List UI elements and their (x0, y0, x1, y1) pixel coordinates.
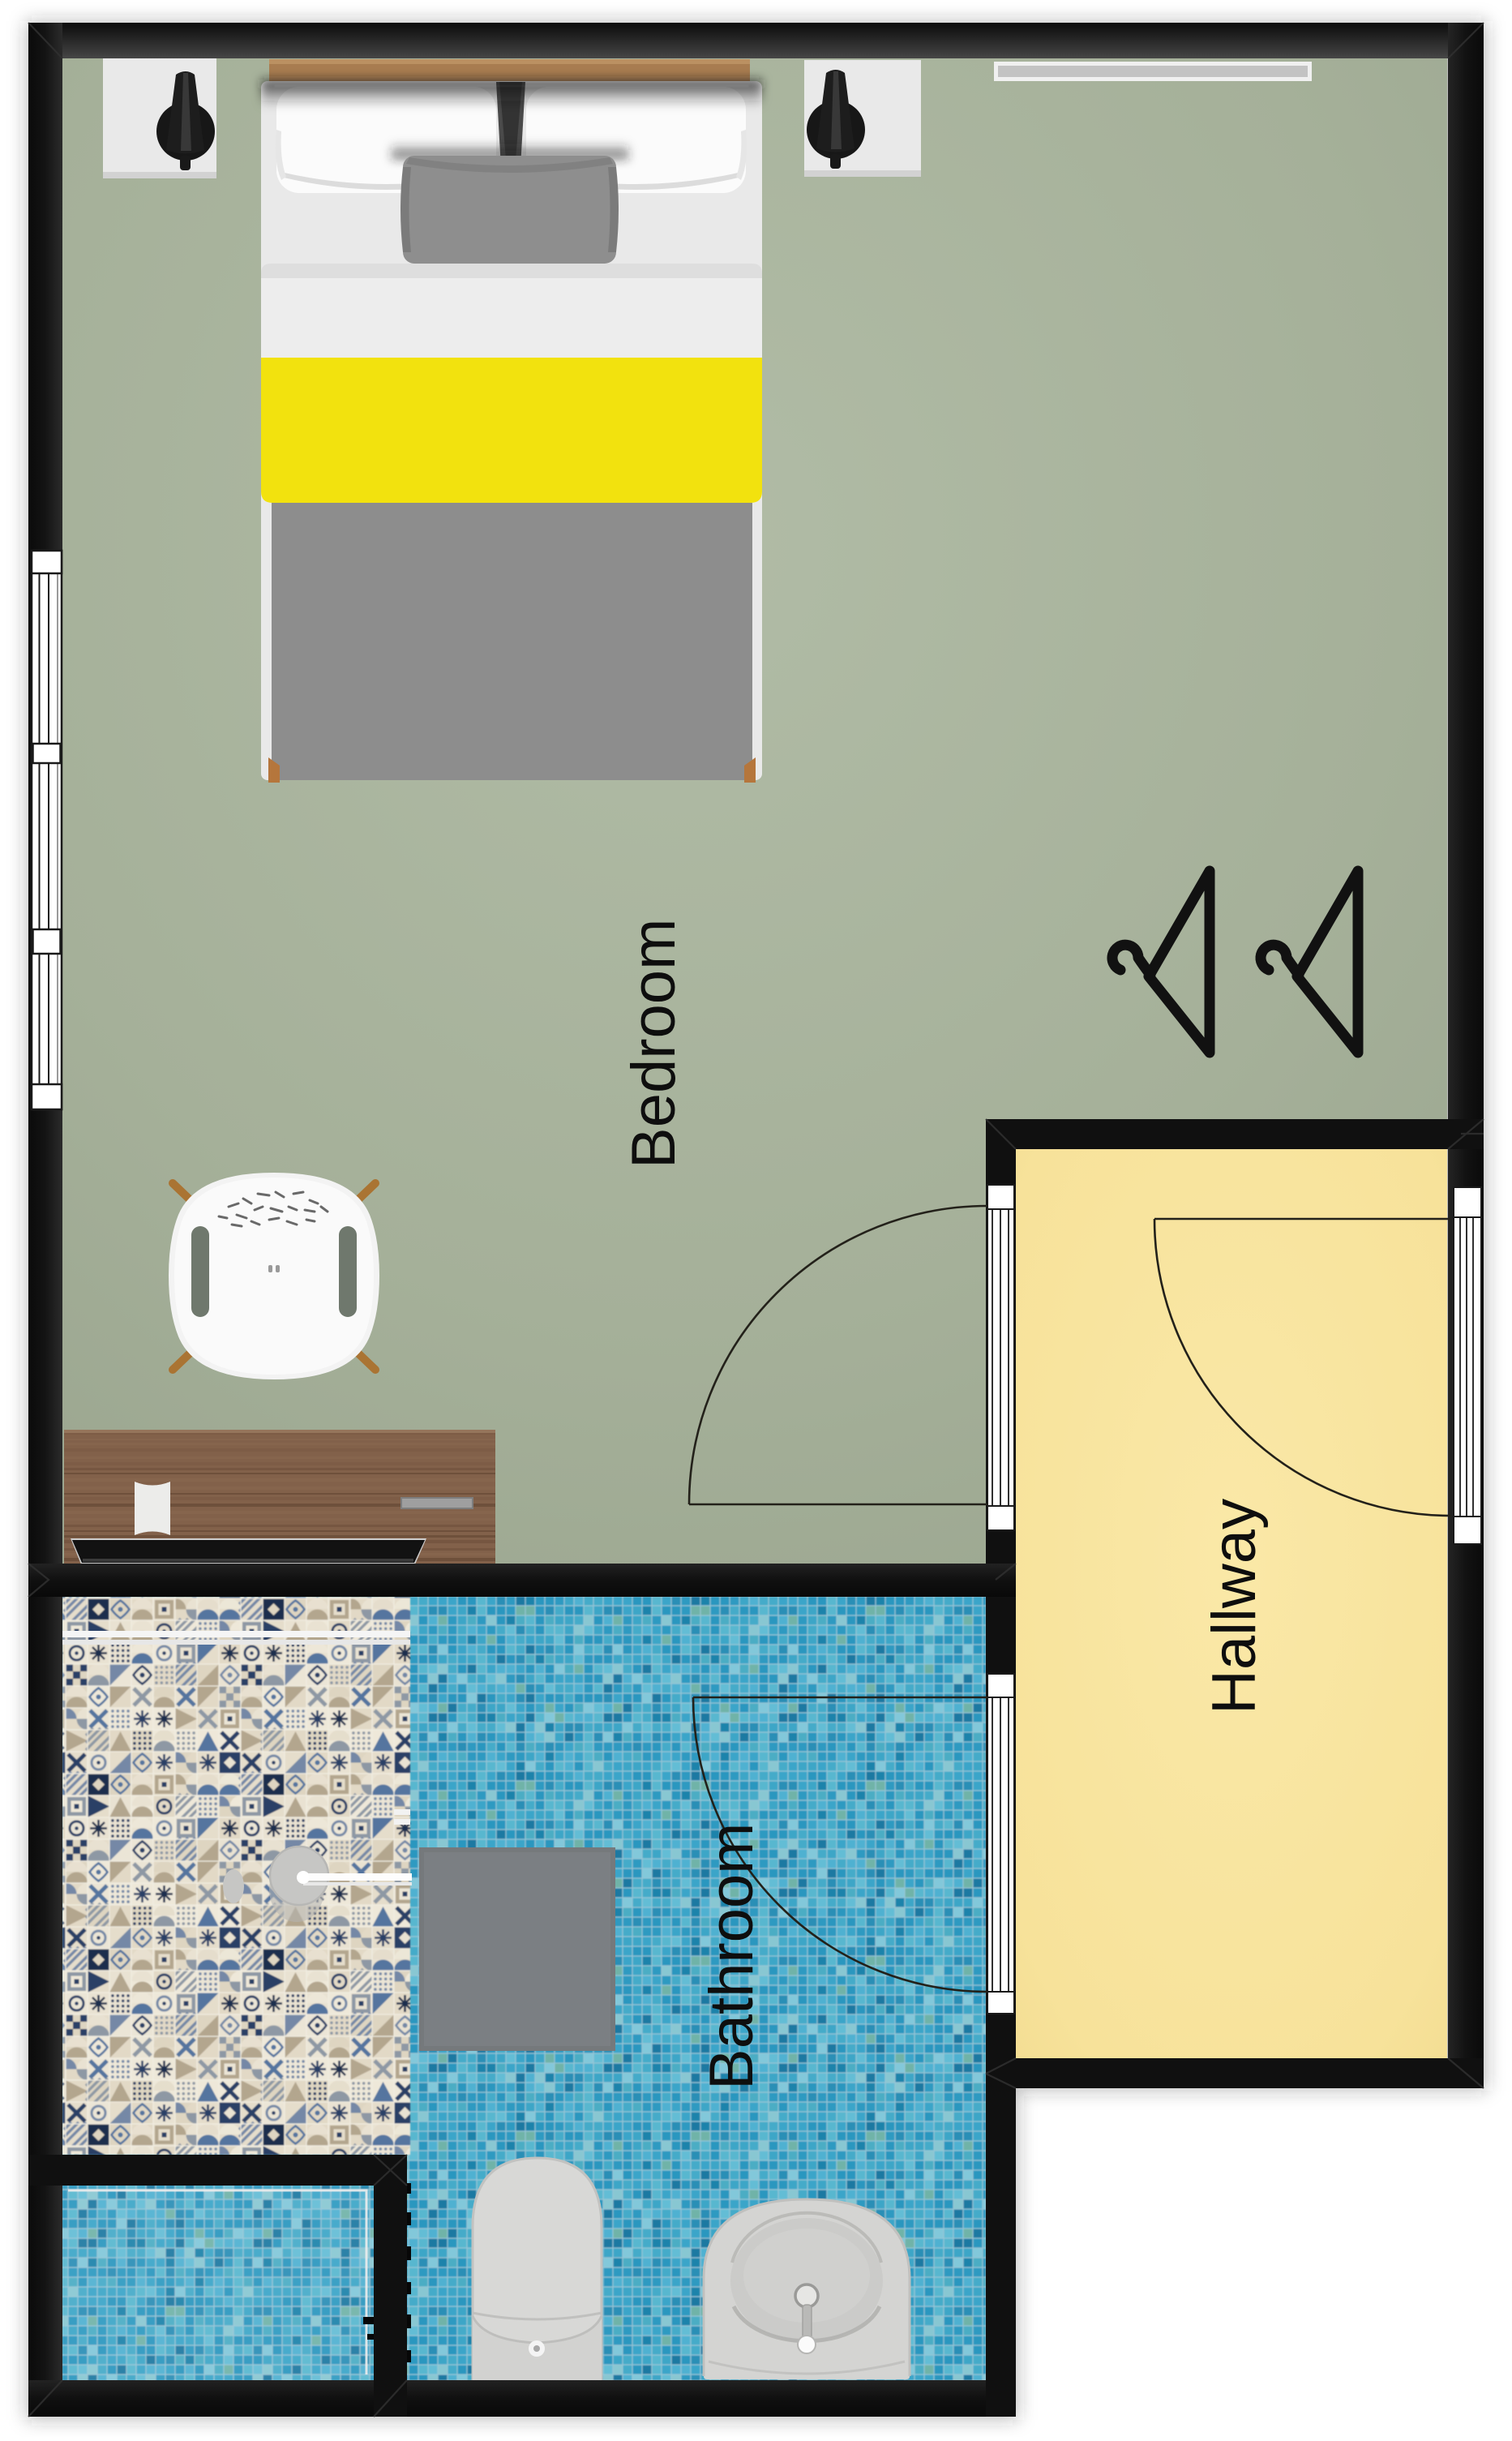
svg-text:Bedroom: Bedroom (619, 919, 688, 1169)
svg-text:Bathroom: Bathroom (697, 1823, 766, 2091)
svg-text:Hallway: Hallway (1200, 1499, 1269, 1714)
